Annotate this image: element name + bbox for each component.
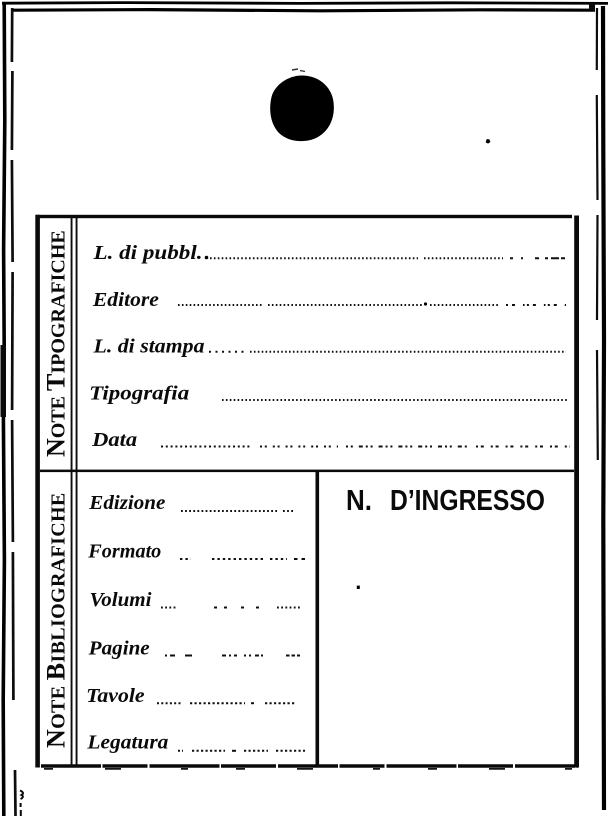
svg-text:N.: N.: [346, 485, 372, 517]
svg-text:L. di pubbl.: L. di pubbl.: [92, 242, 202, 264]
svg-text:Legatura: Legatura: [86, 731, 168, 753]
svg-text:Formato: Formato: [87, 540, 161, 562]
svg-text:Edizione: Edizione: [88, 492, 165, 514]
svg-text:Volumi: Volumi: [90, 589, 152, 611]
svg-text:Editore: Editore: [92, 289, 159, 311]
svg-text:Tavole: Tavole: [86, 685, 145, 707]
svg-text:Tipografia: Tipografia: [89, 382, 189, 404]
svg-text:Pagine: Pagine: [88, 637, 150, 659]
svg-text:L. di stampa: L. di stampa: [92, 335, 204, 357]
svg-text:Data: Data: [91, 429, 137, 451]
svg-text:D’INGRESSO: D’INGRESSO: [390, 485, 545, 517]
